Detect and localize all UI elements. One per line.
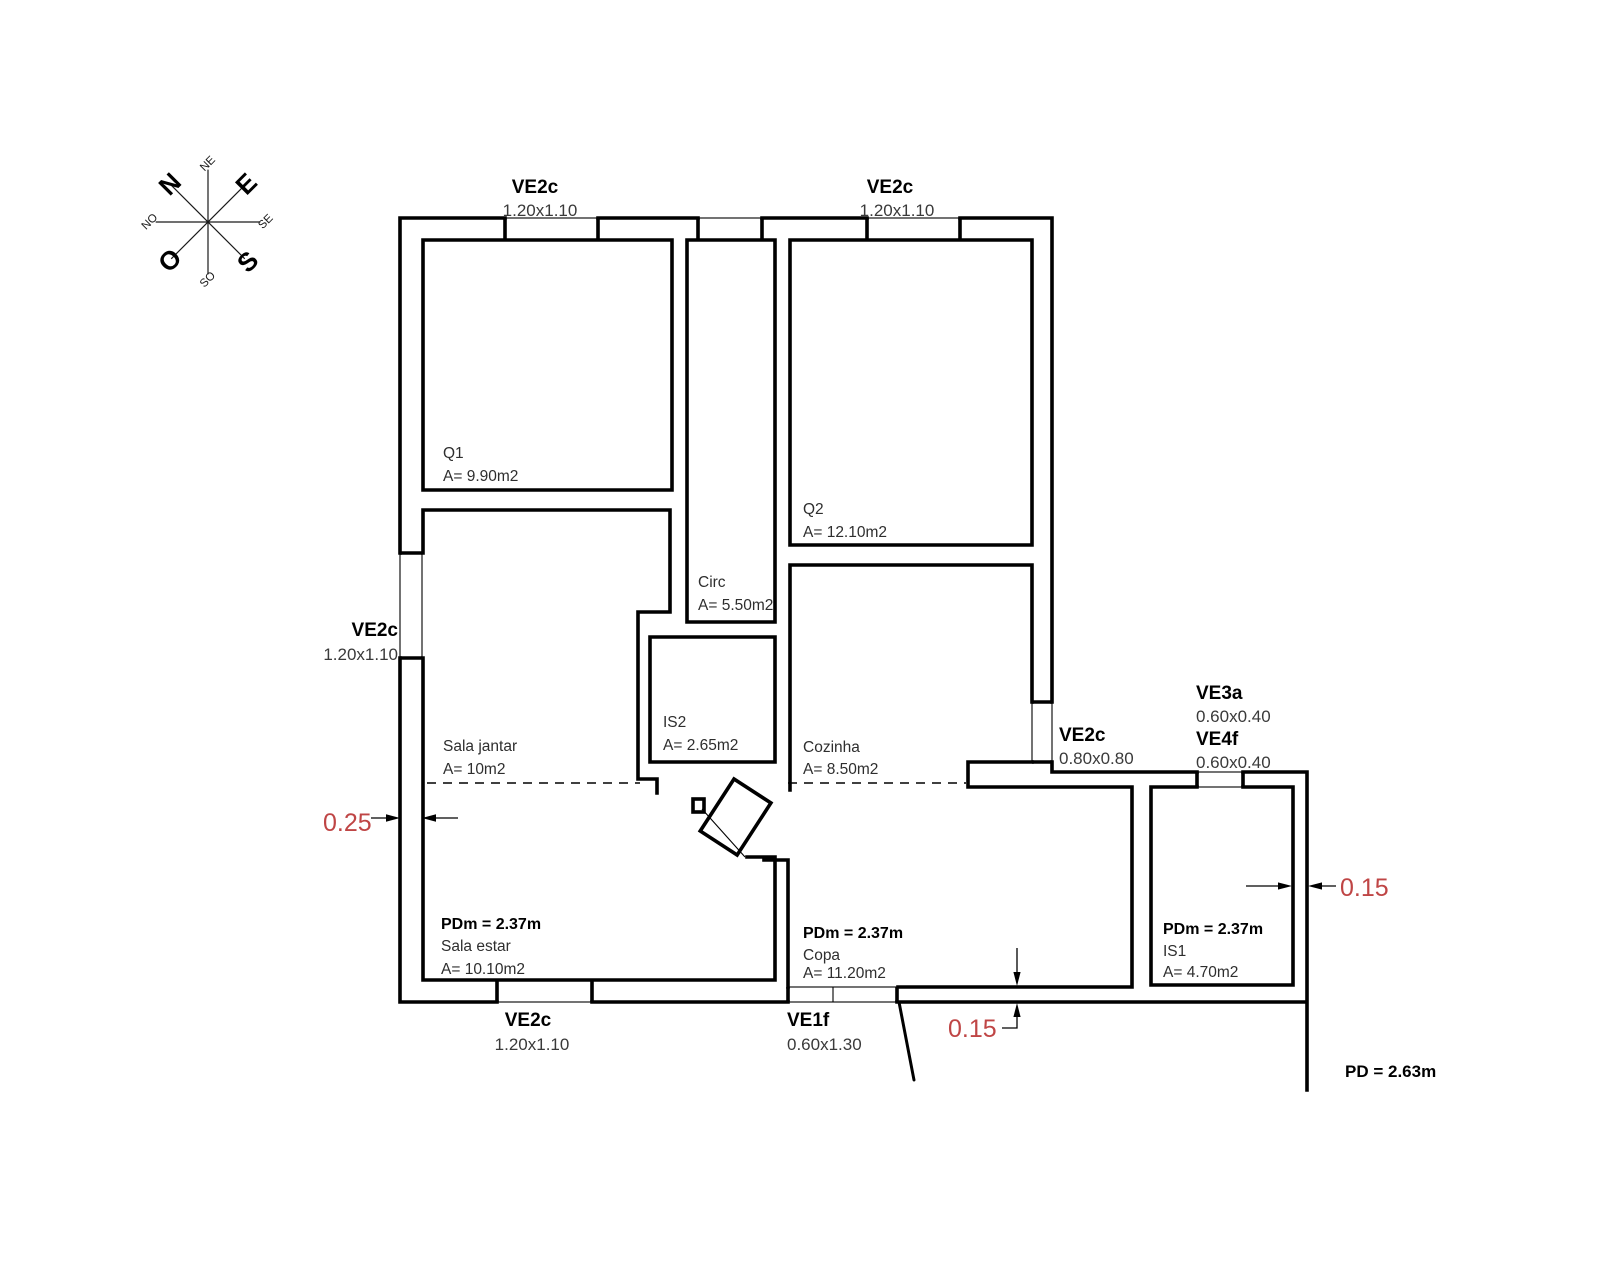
dimension-bottom-wall: 0.15 xyxy=(948,948,1021,1043)
room-circ-name: Circ xyxy=(698,574,726,591)
compass-rose: N E S O NE SE SO NO xyxy=(114,129,303,318)
room-is1-area: A= 4.70m2 xyxy=(1163,964,1238,981)
window-top-right xyxy=(867,218,960,240)
room-copa-area: A= 11.20m2 xyxy=(803,965,886,982)
room-sala-jantar-name: Sala jantar xyxy=(443,738,517,755)
room-copa-name: Copa xyxy=(803,947,840,964)
arrowhead xyxy=(1278,882,1292,889)
window-bottom-code: VE2c xyxy=(505,1010,552,1031)
dimension-right-wall: 0.15 xyxy=(1246,874,1389,902)
window-bottom-size: 1.20x1.10 xyxy=(495,1035,570,1054)
window-top-left-size: 1.20x1.10 xyxy=(503,201,578,220)
door-swing-line xyxy=(702,809,745,857)
window-bottom xyxy=(497,980,592,1002)
window-ve4f-size: 0.60x0.40 xyxy=(1196,753,1271,772)
room-sala-estar-name: Sala estar xyxy=(441,938,511,955)
room-q1-name: Q1 xyxy=(443,445,464,462)
arrowhead xyxy=(1308,882,1322,889)
door-exterior-swing-line xyxy=(899,1002,914,1080)
room-q1-area: A= 9.90m2 xyxy=(443,468,518,485)
room-sala-estar-area: A= 10.10m2 xyxy=(441,961,525,978)
room-q2-area: A= 12.10m2 xyxy=(803,524,887,541)
arrowhead xyxy=(1013,972,1020,986)
room-is2-name: IS2 xyxy=(663,714,686,731)
window-top-right-size: 1.20x1.10 xyxy=(860,201,935,220)
window-top-left xyxy=(505,218,598,240)
room-outline-q2 xyxy=(790,240,1032,545)
dim-bottom-wall-text: 0.15 xyxy=(948,1015,997,1043)
room-is1-ceiling: PDm = 2.37m xyxy=(1163,921,1263,938)
window-east-code: VE2c xyxy=(1059,725,1106,746)
window-entry-code: VE1f xyxy=(787,1010,830,1031)
door-exterior xyxy=(899,1002,914,1080)
window-left-code: VE2c xyxy=(352,620,399,641)
compass-northwest: NO xyxy=(140,212,161,233)
room-q2-name: Q2 xyxy=(803,501,824,518)
dim-right-wall-text: 0.15 xyxy=(1340,874,1389,902)
window-top-left-code: VE2c xyxy=(512,177,559,198)
window-ve3a-code: VE3a xyxy=(1196,683,1243,704)
compass-southwest: SO xyxy=(198,270,218,290)
window-ve3a-size: 0.60x0.40 xyxy=(1196,707,1271,726)
floor-plan-drawing: 0.25 0.15 0.15 VE2c 1.20x1.10 VE2c 1.20x… xyxy=(0,0,1600,1280)
room-outlines xyxy=(423,240,1293,987)
window-entry-size: 0.60x1.30 xyxy=(787,1035,862,1054)
room-sala-estar-ceiling: PDm = 2.37m xyxy=(441,916,541,933)
room-outline-circ xyxy=(687,240,775,622)
room-circ-area: A= 5.50m2 xyxy=(698,597,773,614)
window-left-size: 1.20x1.10 xyxy=(323,645,398,664)
window-ve4f-code: VE4f xyxy=(1196,729,1239,750)
window-east-size: 0.80x0.80 xyxy=(1059,749,1134,768)
arrowhead xyxy=(386,814,400,822)
dimension-left-wall: 0.25 xyxy=(323,809,458,837)
ceiling-total-note: PD = 2.63m xyxy=(1345,1062,1436,1081)
room-copa-ceiling: PDm = 2.37m xyxy=(803,925,903,942)
room-is1-name: IS1 xyxy=(1163,943,1186,960)
compass-northeast: NE xyxy=(198,154,218,174)
window-top-right-code: VE2c xyxy=(867,177,914,198)
door-leaf xyxy=(700,779,771,855)
room-is2-area: A= 2.65m2 xyxy=(663,737,738,754)
floor-plan-canvas: 0.25 0.15 0.15 VE2c 1.20x1.10 VE2c 1.20x… xyxy=(0,0,1600,1280)
dim-left-wall-text: 0.25 xyxy=(323,809,372,837)
door-stop-block xyxy=(693,799,704,812)
arrowhead xyxy=(1013,1003,1020,1017)
room-cozinha-area: A= 8.50m2 xyxy=(803,761,878,778)
compass-southeast: SE xyxy=(256,212,276,232)
window-left xyxy=(400,553,422,658)
door-interior xyxy=(693,779,771,857)
window-top-circ xyxy=(698,218,762,240)
window-glyphs xyxy=(400,218,1243,1002)
window-east xyxy=(1032,702,1052,762)
window-entry xyxy=(788,987,897,1002)
window-ve4f xyxy=(1197,772,1243,787)
room-cozinha-name: Cozinha xyxy=(803,739,860,756)
room-sala-jantar-area: A= 10m2 xyxy=(443,761,505,778)
